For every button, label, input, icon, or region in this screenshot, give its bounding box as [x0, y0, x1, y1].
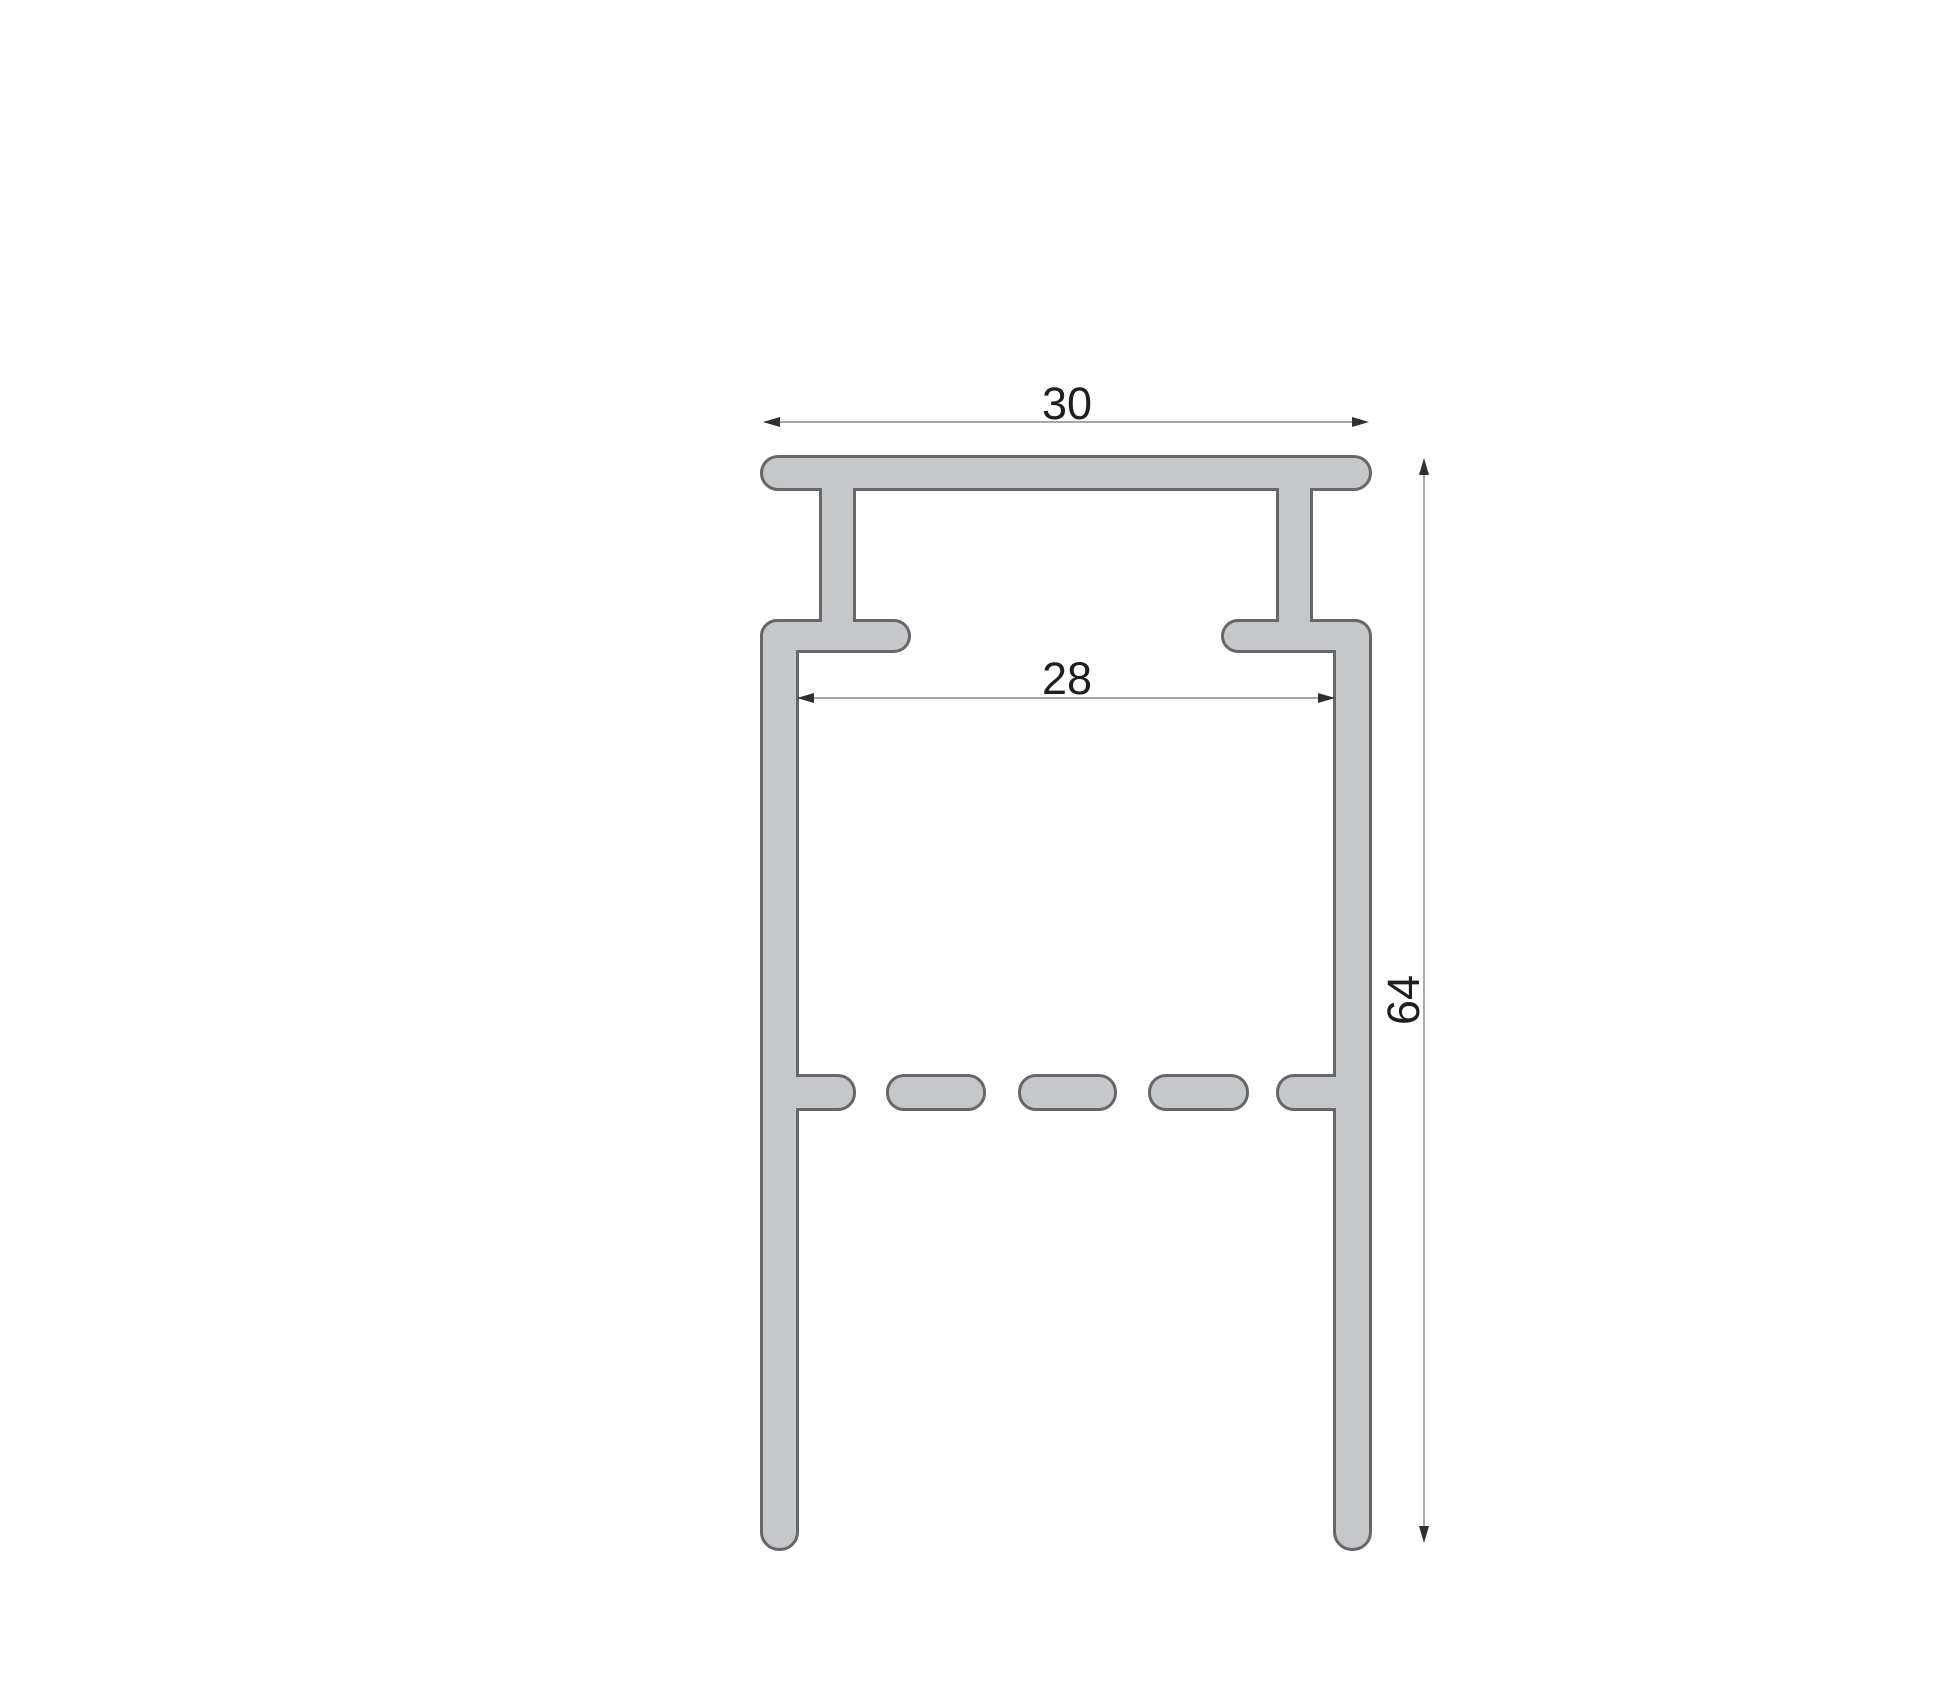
dimension-inner-width: 28	[797, 653, 1335, 704]
arrow-up-icon	[1419, 458, 1429, 475]
dimension-inner-width-label: 28	[1042, 653, 1092, 704]
dimension-height: 64	[1378, 458, 1429, 1543]
dimension-top-width-label: 30	[1042, 378, 1092, 429]
arrow-left-icon	[797, 693, 814, 703]
arrow-left-icon	[763, 417, 780, 427]
profile-cross-section	[763, 458, 1369, 1548]
arrow-right-icon	[1352, 417, 1369, 427]
arrow-right-icon	[1318, 693, 1335, 703]
dimension-top-width: 30	[763, 378, 1369, 429]
dimension-height-label: 64	[1378, 975, 1429, 1025]
profile-outline	[763, 458, 1369, 1548]
profile-drawing: 30 28 64	[0, 0, 1946, 1695]
drawing-canvas: 30 28 64	[0, 0, 1946, 1695]
arrow-down-icon	[1419, 1526, 1429, 1543]
